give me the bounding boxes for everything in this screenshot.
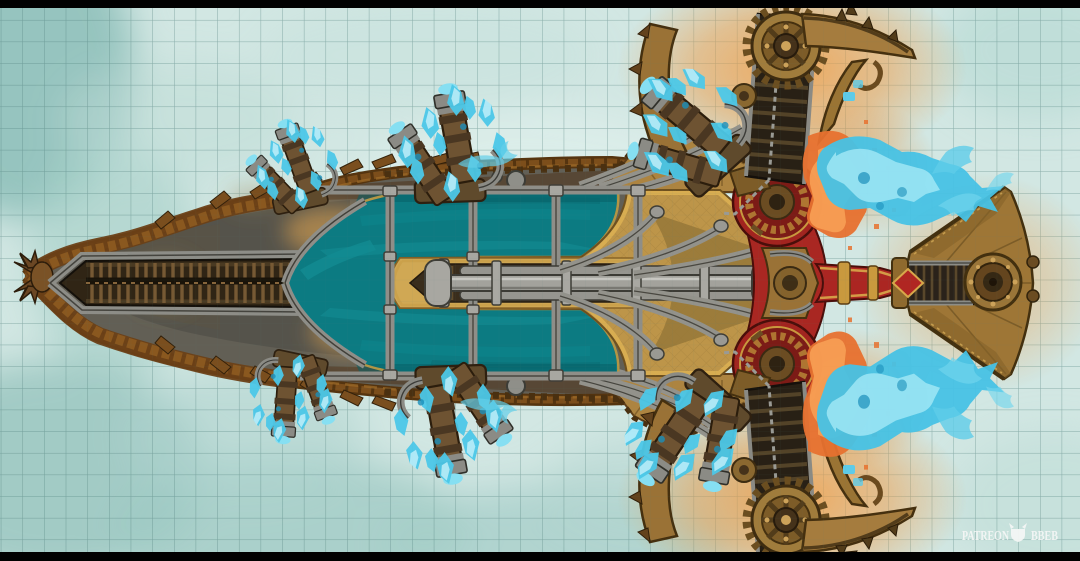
svg-text:BBEB: BBEB <box>1031 528 1058 543</box>
svg-text:PATREON: PATREON <box>962 528 1009 543</box>
